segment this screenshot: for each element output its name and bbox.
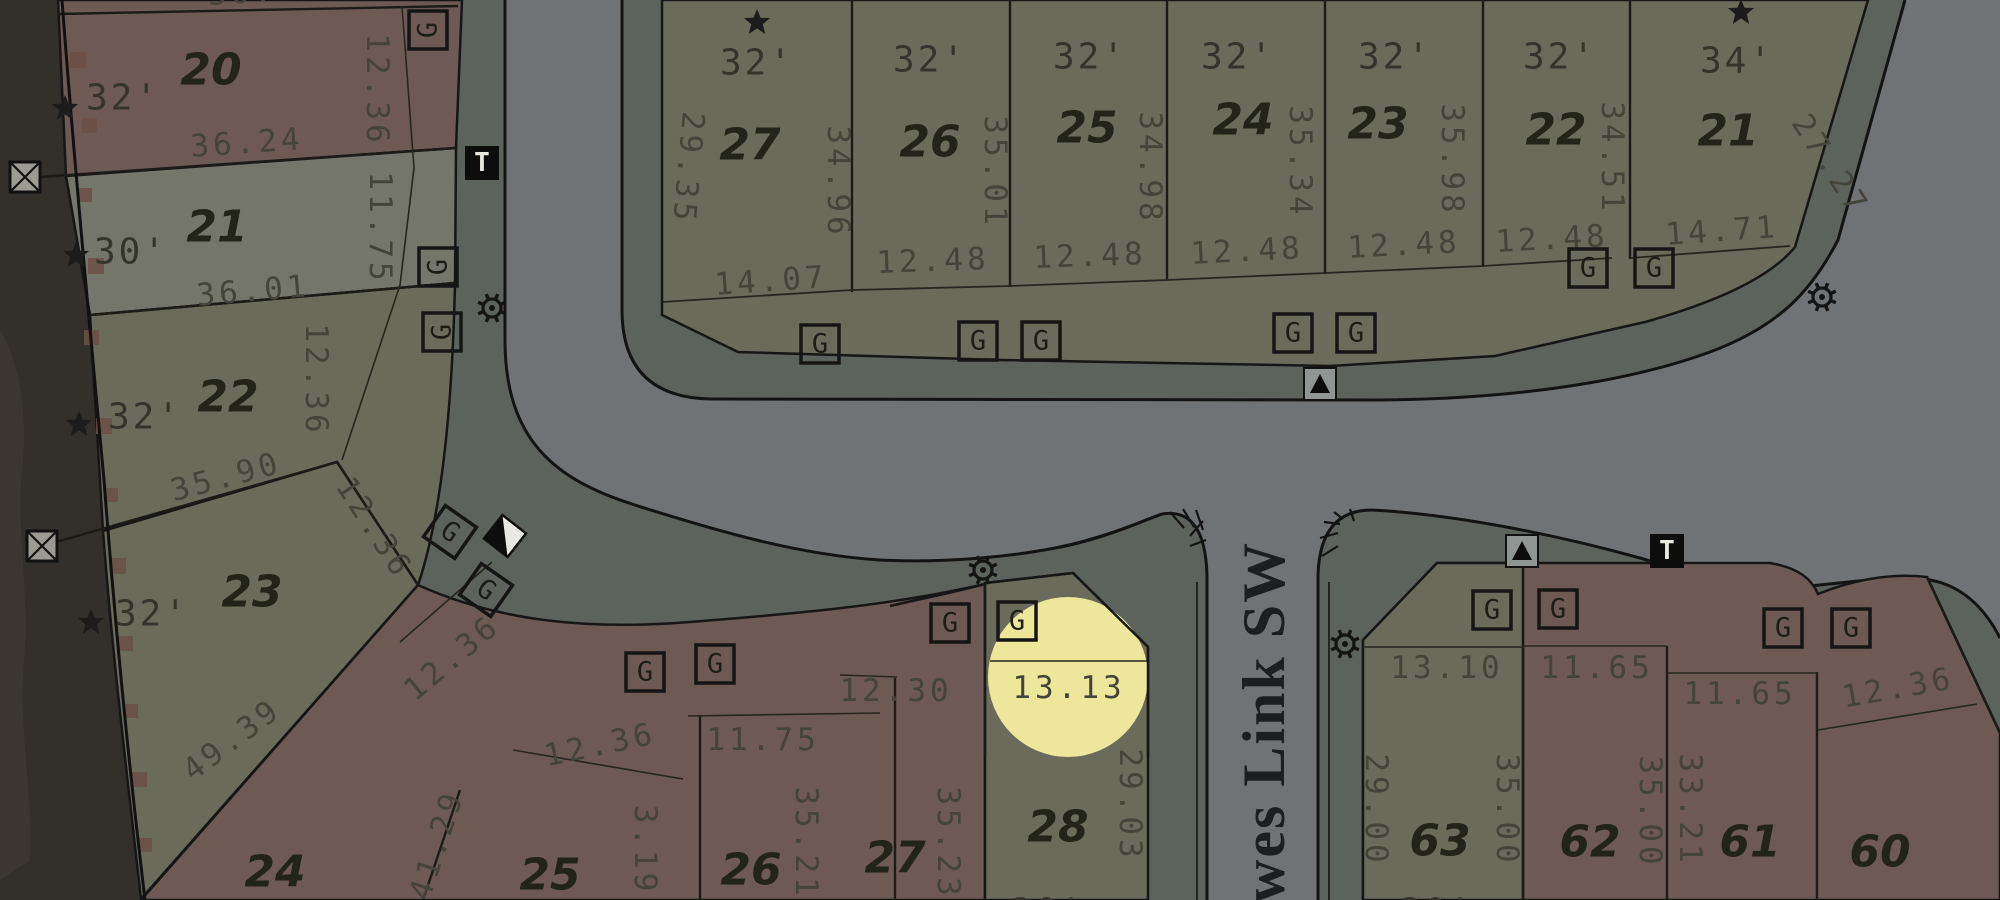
transformer-marker-icon (1304, 368, 1336, 400)
lot-number: 26 (899, 117, 960, 168)
dimension-label: 35.00 (1632, 755, 1668, 868)
lot-number: 20 (180, 45, 241, 96)
svg-text:G: G (1646, 253, 1662, 284)
dimension-label: 12.48 (876, 241, 991, 281)
frontage-label: 32' (893, 40, 967, 81)
transformer-marker-icon (1506, 535, 1538, 567)
lot-number: 24 (244, 847, 305, 898)
svg-text:G: G (942, 608, 958, 639)
lot-number: 28 (1027, 802, 1088, 853)
svg-text:G: G (1033, 326, 1049, 357)
svg-text:G: G (427, 324, 458, 340)
svg-text:G: G (1348, 318, 1364, 349)
svg-text:T: T (474, 148, 490, 178)
lot-number: 27 (864, 833, 926, 884)
svg-text:G: G (707, 649, 723, 680)
dimension-label: 12.48 (1033, 236, 1148, 276)
lot-number: 26 (720, 845, 781, 896)
dimension-label: 35.00 (1489, 753, 1525, 866)
telecom-marker-icon: T (465, 146, 499, 180)
lot-number: 22 (197, 372, 258, 423)
lot-number: 61 (1719, 817, 1780, 868)
plat-map[interactable]: owes Link SW 36.02032'36.2412.362130'36.… (0, 0, 2000, 900)
frontage-label: 32' (1523, 37, 1597, 78)
dimension-label: 29.03 (1112, 748, 1148, 861)
svg-text:G: G (970, 326, 986, 357)
dimension-label: 29.00 (1358, 753, 1394, 866)
svg-text:T: T (1659, 536, 1675, 566)
dimension-label: 11.75 (362, 171, 398, 284)
dimension-label: 12.30 (839, 673, 952, 709)
frontage-label: 32' (86, 78, 160, 119)
dimension-label: 13.10 (1390, 650, 1503, 686)
lot-number: 21 (186, 202, 247, 253)
lot-number: 24 (1212, 95, 1273, 146)
dimension-label: 35.98 (1434, 103, 1470, 216)
svg-text:G: G (1285, 318, 1301, 349)
dimension-label: 13.13 (1012, 670, 1125, 706)
monument-marker-icon (10, 162, 40, 192)
plat-map-screenshot: owes Link SW 36.02032'36.2412.362130'36.… (0, 0, 2000, 900)
dimension-label: 11.75 (706, 722, 819, 758)
lot-number: 62 (1559, 817, 1620, 868)
lot-number: 23 (221, 567, 282, 618)
dimension-label: 33.21 (1672, 753, 1708, 866)
svg-text:G: G (1580, 253, 1596, 284)
telecom-marker-icon: T (1650, 534, 1684, 568)
frontage-label: 34' (1700, 41, 1774, 82)
svg-text:G: G (812, 329, 828, 360)
dimension-label: 35.01 (977, 115, 1013, 228)
lot-number: 22 (1525, 105, 1586, 156)
lot-number: 25 (1056, 103, 1117, 154)
lot-number: 60 (1849, 827, 1910, 878)
monument-marker-icon (27, 531, 57, 561)
lot-number: 21 (1697, 106, 1758, 157)
lot-number: 25 (519, 850, 580, 900)
dimension-label: 12.36 (298, 323, 334, 436)
dimension-label: 11.65 (1540, 650, 1653, 686)
svg-text:G: G (423, 259, 454, 275)
dimension-label: 12.48 (1346, 224, 1461, 266)
svg-text:G: G (413, 22, 444, 38)
dimension-label: 34.51 (1594, 101, 1630, 214)
dimension-label: 12.36 (359, 33, 395, 146)
frontage-label: 32' (115, 594, 189, 635)
svg-text:G: G (1843, 613, 1859, 644)
dimension-label: 34.96 (820, 125, 856, 238)
lot-number: 23 (1347, 99, 1408, 150)
dimension-label: 34.98 (1132, 111, 1168, 224)
frontage-label: 32' (108, 397, 182, 438)
frontage-label: 30' (1400, 892, 1474, 900)
frontage-label: 30' (94, 232, 168, 273)
svg-text:G: G (1775, 613, 1791, 644)
dimension-label: 12.48 (1189, 230, 1304, 272)
frontage-label: 32' (1201, 37, 1275, 78)
street-name: owes Link SW (1231, 541, 1297, 900)
frontage-label: 32' (1358, 37, 1432, 78)
dimension-label: 35.34 (1282, 105, 1318, 218)
lot-number: 27 (719, 120, 781, 171)
dimension-label: 35.23 (930, 786, 966, 899)
svg-text:G: G (1484, 595, 1500, 626)
frontage-label: 32' (1053, 37, 1127, 78)
svg-text:G: G (1550, 594, 1566, 625)
svg-text:G: G (637, 657, 653, 688)
svg-text:G: G (1009, 606, 1025, 637)
lot-number: 63 (1409, 816, 1470, 867)
frontage-label: 30' (1011, 892, 1085, 900)
dimension-label: 11.65 (1683, 676, 1796, 712)
frontage-label: 32' (720, 43, 794, 84)
dimension-label: 3.19 (627, 805, 663, 896)
dimension-label: 35.21 (788, 786, 824, 899)
